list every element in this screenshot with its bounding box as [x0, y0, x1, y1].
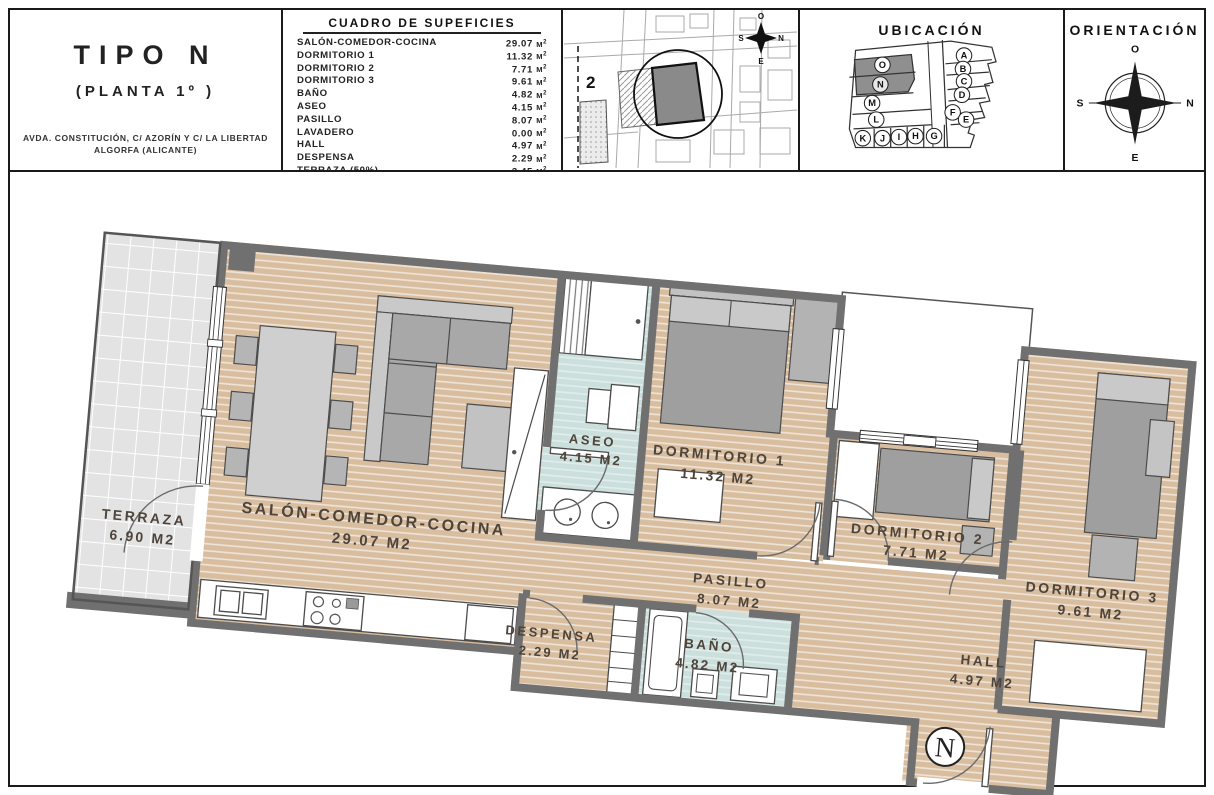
address-line1: AVDA. CONSTITUCIÓN, C/ AZORÍN Y C/ LA LI…	[10, 132, 281, 144]
svg-text:M: M	[868, 98, 876, 108]
table-row: DESPENSA2.29 M2	[297, 152, 547, 165]
svg-text:H: H	[912, 131, 919, 141]
table-row: ASEO4.15 M2	[297, 101, 547, 114]
site-plan-map: 2 O S N E	[564, 10, 797, 168]
compass-label-left: S	[1076, 99, 1083, 110]
address-line2: ALGORFA (ALICANTE)	[10, 144, 281, 156]
table-row: LAVADERO0.00 M2	[297, 127, 547, 140]
ubicacion-panel: UBICACIÓN O N M L K	[800, 10, 1065, 170]
bathtub	[643, 609, 688, 698]
svg-text:L: L	[873, 115, 879, 125]
svg-text:N: N	[778, 34, 784, 43]
compass-rose-icon: O N E S	[1074, 42, 1196, 164]
orientacion-panel: ORIENTACIÓN O N E S	[1065, 10, 1204, 170]
plan-type-title: TIPO N	[10, 40, 281, 71]
site-plot-number: 2	[586, 73, 595, 92]
site-plan-panel: 2 O S N E	[563, 10, 800, 170]
svg-text:D: D	[958, 90, 965, 100]
svg-text:F: F	[949, 107, 955, 117]
svg-text:C: C	[960, 76, 967, 86]
wardrobe	[833, 441, 879, 520]
desk	[1029, 640, 1146, 712]
svg-text:B: B	[959, 64, 966, 74]
floorplan-sheet: TIPO N (PLANTA 1º ) AVDA. CONSTITUCIÓN, …	[0, 0, 1214, 795]
site-green-area	[580, 100, 608, 164]
table-row: DORMITORIO 111.32 M2	[297, 50, 547, 63]
stove-icon	[303, 592, 364, 631]
courtyard	[830, 292, 1033, 450]
svg-text:I: I	[897, 132, 900, 142]
svg-text:O: O	[878, 60, 885, 70]
svg-text:G: G	[930, 131, 937, 141]
ubicacion-block-plan: O N M L K J I H G A B C D F E	[822, 38, 1042, 164]
floor-plan: TERRAZA 6.90 M2 SALÓN-COMEDOR-COCINA 29.…	[37, 218, 1214, 795]
hall-floor-west	[792, 618, 924, 722]
compass-label-right: N	[1186, 99, 1194, 110]
table-row: TERRAZA (50%)3.45 M2	[297, 165, 547, 170]
site-building-plot	[652, 63, 704, 125]
table-row: DORMITORIO 27.71 M2	[297, 63, 547, 76]
title-bar: TIPO N (PLANTA 1º ) AVDA. CONSTITUCIÓN, …	[10, 10, 1204, 172]
title-block: TIPO N (PLANTA 1º ) AVDA. CONSTITUCIÓN, …	[10, 10, 283, 170]
svg-text:A: A	[960, 51, 967, 61]
compass-label-bottom: E	[1131, 153, 1138, 164]
table-row: DORMITORIO 39.61 M2	[297, 75, 547, 88]
toilet-tank	[586, 388, 611, 424]
floor-plan-drawing: TERRAZA 6.90 M2 SALÓN-COMEDOR-COCINA 29.…	[37, 218, 1214, 795]
svg-text:S: S	[738, 34, 744, 43]
address: AVDA. CONSTITUCIÓN, C/ AZORÍN Y C/ LA LI…	[10, 132, 281, 156]
plan-floor-label: (PLANTA 1º )	[10, 83, 281, 100]
orientacion-title: ORIENTACIÓN	[1065, 22, 1204, 38]
dining-table	[223, 324, 359, 504]
svg-text:K: K	[859, 133, 866, 143]
bed-foot-chest	[1089, 535, 1138, 581]
table-row: SALÓN-COMEDOR-COCINA29.07 M2	[297, 37, 547, 50]
table-row: HALL4.97 M2	[297, 139, 547, 152]
surface-table-title: CUADRO DE SUPEFICIES	[303, 16, 541, 34]
sheet-border: TIPO N (PLANTA 1º ) AVDA. CONSTITUCIÓN, …	[8, 8, 1206, 787]
table-row: PASILLO8.07 M2	[297, 114, 547, 127]
svg-text:O: O	[758, 12, 764, 21]
surface-table-panel: CUADRO DE SUPEFICIES SALÓN-COMEDOR-COCIN…	[283, 10, 563, 170]
toilet-bowl	[608, 384, 640, 430]
surface-table: CUADRO DE SUPEFICIES SALÓN-COMEDOR-COCIN…	[283, 10, 561, 170]
armchair	[462, 404, 513, 472]
compass-label-top: O	[1130, 44, 1138, 55]
svg-text:J: J	[879, 133, 884, 143]
svg-text:E: E	[758, 57, 764, 66]
table-row: BAÑO4.82 M2	[297, 88, 547, 101]
unit-marker-letter: N	[934, 732, 957, 765]
svg-text:N: N	[877, 80, 884, 90]
ubicacion-title: UBICACIÓN	[800, 22, 1063, 38]
svg-text:E: E	[962, 115, 968, 125]
